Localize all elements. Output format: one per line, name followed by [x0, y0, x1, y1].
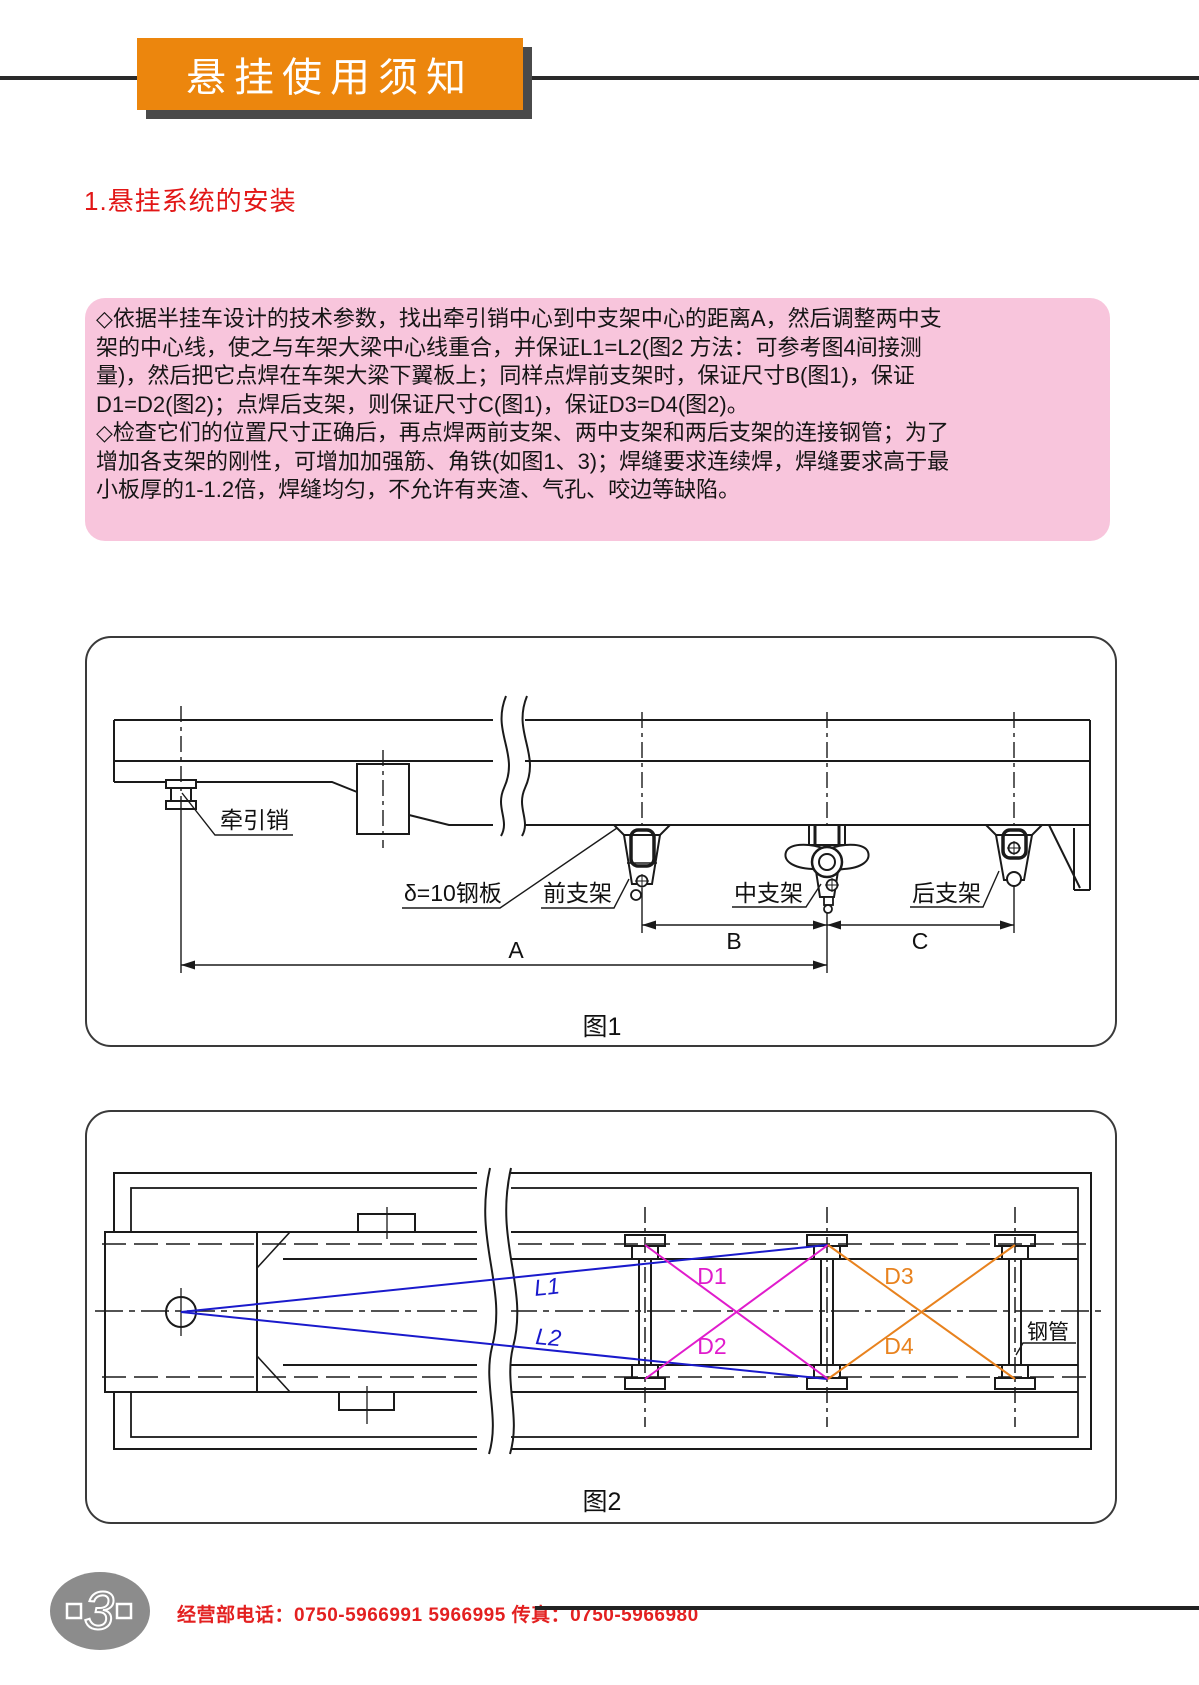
- page-banner: 悬挂使用须知: [137, 38, 523, 110]
- kingpin-label: 牵引销: [220, 807, 289, 833]
- note-line: 增加各支架的刚性，可增加加强筋、角铁(如图1、3)；焊缝要求连续焊，焊缝要求高于…: [96, 448, 1104, 477]
- plate-corner-chamfers: [257, 1232, 290, 1392]
- d1-label: D1: [697, 1263, 726, 1289]
- figure2-drawing: L1 L2 D1 D2 D3 D4 钢管 图2: [87, 1112, 1115, 1522]
- dimension-lines: [181, 925, 1014, 965]
- d2-label: D2: [697, 1333, 726, 1359]
- figure2-caption: 图2: [583, 1488, 622, 1516]
- l2-label: L2: [535, 1323, 563, 1351]
- gooseneck-bottom: [114, 782, 357, 792]
- footer-divider-rule: [535, 1606, 1199, 1610]
- d3-d4-diagonals: [828, 1245, 1015, 1379]
- dim-b-label: B: [726, 928, 741, 954]
- middle-bracket-label: 中支架: [734, 880, 803, 906]
- note-line: ◇检查它们的位置尺寸正确后，再点焊两前支架、两中支架和两后支架的连接钢管；为了: [96, 419, 1104, 448]
- rear-bracket-label: 后支架: [912, 880, 981, 906]
- page-number-badge: 3: [50, 1572, 150, 1650]
- manual-page: 悬挂使用须知 1.悬挂系统的安装 ◇依据半挂车设计的技术参数，找出牵引销中心到中…: [0, 0, 1199, 1685]
- d1-d2-diagonals: [645, 1245, 828, 1379]
- d3-label: D3: [884, 1263, 913, 1289]
- frame-inner-rect: [131, 1188, 1078, 1437]
- note-line: 架的中心线，使之与车架大梁中心线重合，并保证L1=L2(图2 方法：可参考图4间…: [96, 334, 1104, 363]
- installation-note-text: ◇依据半挂车设计的技术参数，找出牵引销中心到中支架中心的距离A，然后调整两中支 …: [85, 298, 1110, 505]
- figure1-frame-side-view: 牵引销 δ=10钢板 前支架 中支架 后支架 B C A 图1: [85, 636, 1117, 1047]
- front-bracket-label: 前支架: [543, 880, 612, 906]
- page-number: 3: [84, 1581, 114, 1641]
- d4-label: D4: [884, 1333, 914, 1359]
- page-title: 悬挂使用须知: [186, 45, 474, 103]
- note-line: ◇依据半挂车设计的技术参数，找出牵引销中心到中支架中心的距离A，然后调整两中支: [96, 305, 1104, 334]
- note-line: 小板厚的1-1.2倍，焊缝均匀，不允许有夹渣、气孔、咬边等缺陷。: [96, 476, 1104, 505]
- rear-bracket-shape: [986, 825, 1042, 886]
- figure1-caption: 图1: [583, 1013, 622, 1041]
- dim-c-label: C: [912, 928, 929, 954]
- plate-label: δ=10钢板: [404, 880, 502, 906]
- installation-note-box: ◇依据半挂车设计的技术参数，找出牵引销中心到中支架中心的距离A，然后调整两中支 …: [85, 298, 1110, 541]
- note-line: 量)，然后把它点焊在车架大梁下翼板上；同样点焊前支架时，保证尺寸B(图1)，保证: [96, 362, 1104, 391]
- rear-gusset: [1049, 825, 1090, 890]
- figure1-drawing: 牵引销 δ=10钢板 前支架 中支架 后支架 B C A 图1: [87, 638, 1115, 1045]
- figure2-frame-plan-view: L1 L2 D1 D2 D3 D4 钢管 图2: [85, 1110, 1117, 1524]
- section-heading: 1.悬挂系统的安装: [84, 181, 297, 218]
- dim-a-label: A: [508, 937, 524, 963]
- l1-label: L1: [533, 1272, 561, 1301]
- steel-tube-leader: [1016, 1343, 1076, 1355]
- steel-tube-label: 钢管: [1027, 1321, 1069, 1344]
- footer-contact-info: 经营部电话：0750-5966991 5966995 传真：0750-59669…: [177, 1600, 699, 1627]
- note-line: D1=D2(图2)；点焊后支架，则保证尺寸C(图1)，保证D3=D4(图2)。: [96, 391, 1104, 420]
